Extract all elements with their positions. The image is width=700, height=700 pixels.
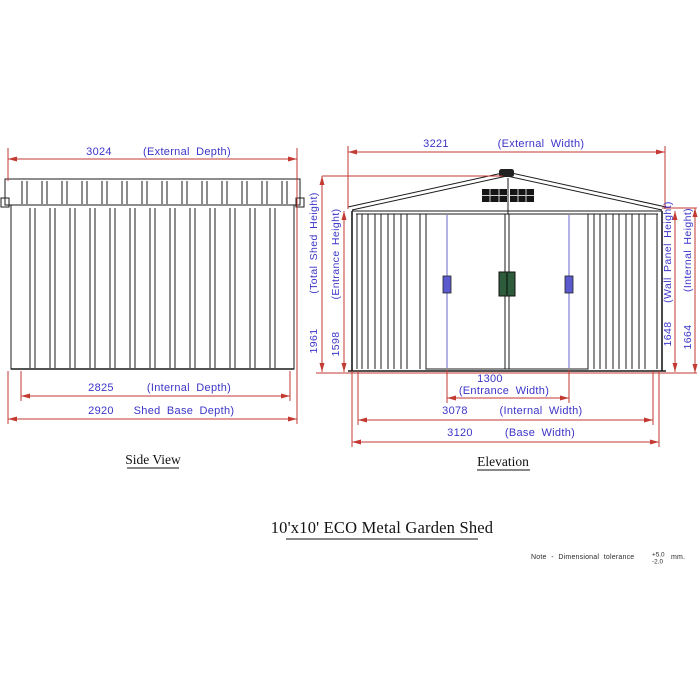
total-shed-height-label: (Total Shed Height) — [308, 192, 320, 293]
internal-height-label: (Internal Height) — [682, 208, 694, 292]
sliding-doors — [420, 214, 594, 369]
tolerance-note: Note - Dimensional tolerance +5.0 -2.0 m… — [531, 552, 685, 566]
side-view: 3024 (External Depth) 2825 (Internal Dep… — [1, 146, 304, 468]
side-roof-ribs — [22, 181, 287, 204]
side-roof-panel — [5, 179, 300, 205]
drawing-title: 10'x10' ECO Metal Garden Shed — [271, 518, 494, 537]
internal-height-value: 1664 — [682, 325, 694, 350]
elevation-view: 3221 (External Width) (Total Shed Height… — [308, 138, 697, 470]
external-depth-label: (External Depth) — [143, 146, 231, 158]
note-text: Note - Dimensional tolerance — [531, 554, 634, 561]
internal-depth-value: 2825 — [88, 382, 114, 394]
note-tolerance-minus: -2.0 — [652, 559, 663, 566]
base-depth-value: 2920 — [88, 405, 114, 417]
elevation-right-wall-ribs — [600, 214, 645, 369]
internal-width-label: (Internal Width) — [500, 405, 583, 417]
note-units: mm. — [671, 554, 685, 561]
side-wall-ribs — [30, 208, 275, 368]
door-handle-left — [443, 276, 451, 293]
external-width-label: (External Width) — [498, 138, 585, 150]
internal-width-value: 3078 — [442, 405, 468, 417]
dim-entrance-height: (Entrance Height) 1598 — [330, 208, 344, 372]
wall-panel-height-label: (Wall Panel Height) — [662, 201, 674, 303]
elevation-left-wall-ribs — [362, 214, 407, 369]
dim-base-depth: 2920 Shed Base Depth) — [8, 371, 297, 424]
technical-drawing-page: 3024 (External Depth) 2825 (Internal Dep… — [0, 0, 700, 700]
external-width-value: 3221 — [423, 138, 449, 150]
base-width-label: (Base Width) — [505, 427, 575, 439]
dim-internal-depth: 2825 (Internal Depth) — [21, 371, 290, 401]
internal-depth-label: (Internal Depth) — [147, 382, 231, 394]
base-width-value: 3120 — [447, 427, 473, 439]
dim-internal-height: (Internal Height) 1664 — [682, 208, 695, 373]
shed-drawing: 3024 (External Depth) 2825 (Internal Dep… — [0, 0, 700, 700]
entrance-width-label: (Entrance Width) — [459, 385, 549, 397]
external-depth-value: 3024 — [86, 146, 112, 158]
side-view-label: Side View — [125, 452, 181, 467]
entrance-width-value: 1300 — [477, 373, 503, 385]
entrance-height-label: (Entrance Height) — [330, 208, 342, 299]
note-tolerance-plus: +5.0 — [652, 552, 665, 559]
gable-vent-right — [510, 189, 534, 202]
door-handle-right — [565, 276, 573, 293]
wall-panel-height-value: 1648 — [662, 322, 674, 347]
side-wall-panel — [11, 205, 294, 369]
dim-entrance-width: 1300 (Entrance Width) — [447, 370, 569, 403]
elevation-label: Elevation — [477, 454, 529, 469]
base-depth-label: Shed Base Depth) — [134, 405, 235, 417]
entrance-height-value: 1598 — [330, 332, 342, 357]
total-shed-height-value: 1961 — [308, 329, 320, 354]
gable-vent-left — [482, 189, 507, 202]
